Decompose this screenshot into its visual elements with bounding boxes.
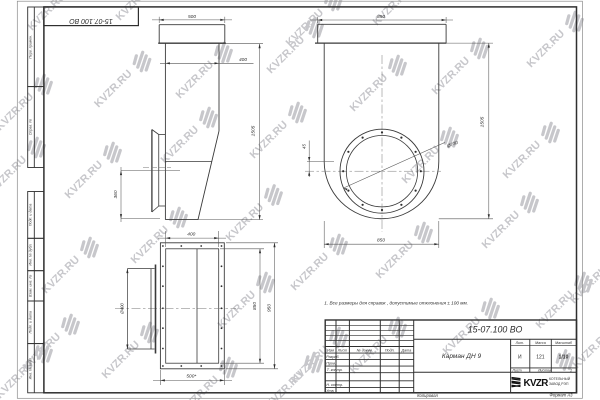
svg-text:Копировал: Копировал [417, 393, 438, 398]
svg-text:KVZR.RU: KVZR.RU [525, 28, 568, 71]
svg-text:Карман ДН 9: Карман ДН 9 [442, 353, 482, 360]
svg-text:KVZR.RU: KVZR.RU [534, 289, 577, 332]
svg-text:850: 850 [377, 14, 385, 20]
svg-text:500: 500 [188, 14, 196, 20]
svg-text:KVZR.RU: KVZR.RU [100, 339, 143, 382]
svg-text:Масса: Масса [535, 341, 546, 345]
svg-text:KVZR.RU: KVZR.RU [248, 119, 291, 162]
svg-text:45: 45 [301, 144, 306, 149]
svg-text:Н. контр.: Н. контр. [326, 383, 343, 387]
svg-text:Т. контр.: Т. контр. [327, 368, 343, 372]
svg-text:Справ. №: Справ. № [28, 119, 32, 135]
svg-text:1. Все размеры для справок ,: 1. Все размеры для справок , допустимые … [324, 301, 468, 306]
svg-text:Утв.: Утв. [326, 389, 334, 393]
svg-text:15-07.100 ВО: 15-07.100 ВО [468, 324, 523, 334]
svg-text:Формат А3: Формат А3 [550, 393, 574, 398]
svg-text:KVZR.RU: KVZR.RU [92, 68, 135, 111]
svg-text:KVZR.RU: KVZR.RU [571, 329, 600, 372]
svg-text:1505: 1505 [251, 125, 257, 136]
svg-text:KVZR.RU: KVZR.RU [348, 334, 391, 377]
svg-text:Подп. и дата: Подп. и дата [28, 311, 32, 334]
svg-text:KVZR.RU: KVZR.RU [40, 254, 83, 297]
svg-text:Лист: Лист [511, 368, 521, 372]
svg-text:Дата: Дата [401, 348, 412, 352]
svg-text:ЗАВОД РЭП: ЗАВОД РЭП [549, 382, 569, 386]
svg-text:121: 121 [536, 355, 545, 361]
svg-text:360: 360 [113, 190, 119, 198]
svg-text:400: 400 [187, 231, 195, 237]
svg-text:Лит.: Лит. [515, 341, 524, 345]
svg-text:Пров.: Пров. [326, 362, 336, 366]
svg-text:KVZR.RU: KVZR.RU [179, 374, 222, 400]
svg-text:КОТЕЛЬНЫЙ: КОТЕЛЬНЫЙ [549, 377, 571, 381]
svg-text:Инв. № подл.: Инв. № подл. [28, 357, 32, 379]
svg-text:KVZR.RU: KVZR.RU [129, 224, 172, 267]
svg-text:1: 1 [570, 368, 572, 372]
svg-text:Листов: Листов [537, 368, 551, 372]
svg-text:Изм: Изм [327, 348, 334, 352]
svg-text:Лист: Лист [337, 348, 348, 352]
svg-text:15-07.100 ВО: 15-07.100 ВО [69, 17, 113, 24]
svg-text:KVZR.RU: KVZR.RU [480, 209, 523, 252]
svg-text:Ø400: Ø400 [120, 303, 125, 315]
svg-text:KVZR.RU: KVZR.RU [63, 159, 106, 202]
svg-text:Масштаб: Масштаб [555, 341, 573, 345]
svg-text:850: 850 [377, 238, 385, 244]
svg-text:№ докум.: № докум. [357, 348, 373, 352]
svg-text:И: И [518, 355, 522, 361]
svg-text:KVZR.RU: KVZR.RU [430, 55, 473, 98]
svg-text:850: 850 [252, 302, 258, 310]
svg-text:400: 400 [239, 57, 247, 63]
svg-text:KVZR.RU: KVZR.RU [289, 251, 332, 294]
svg-text:KVZR.RU: KVZR.RU [264, 369, 307, 400]
svg-text:KVZR.RU: KVZR.RU [348, 72, 391, 115]
svg-text:KVZR.RU: KVZR.RU [216, 289, 259, 332]
svg-text:KVZR.RU: KVZR.RU [174, 59, 217, 102]
svg-text:500*: 500* [186, 374, 196, 380]
svg-text:1/10: 1/10 [559, 355, 569, 361]
svg-text:KVZR: KVZR [524, 378, 549, 389]
svg-text:Взам. инв. №: Взам. инв. № [28, 275, 32, 297]
svg-text:KVZR.RU: KVZR.RU [26, 0, 69, 33]
svg-text:KVZR.RU: KVZR.RU [501, 139, 544, 182]
svg-text:Перв. примен.: Перв. примен. [28, 35, 32, 59]
svg-text:950: 950 [267, 304, 273, 312]
svg-text:Инв. № дубл.: Инв. № дубл. [28, 243, 32, 265]
svg-text:KVZR.RU: KVZR.RU [114, 0, 157, 23]
svg-text:KVZR.RU: KVZR.RU [441, 315, 484, 358]
svg-text:KVZR.RU: KVZR.RU [0, 154, 29, 197]
svg-text:Подп. и дата: Подп. и дата [28, 204, 32, 227]
svg-text:1505: 1505 [479, 116, 485, 127]
svg-text:Разраб.: Разраб. [326, 355, 339, 359]
svg-text:Подп.: Подп. [385, 348, 395, 352]
svg-text:KVZR.RU: KVZR.RU [374, 239, 417, 282]
